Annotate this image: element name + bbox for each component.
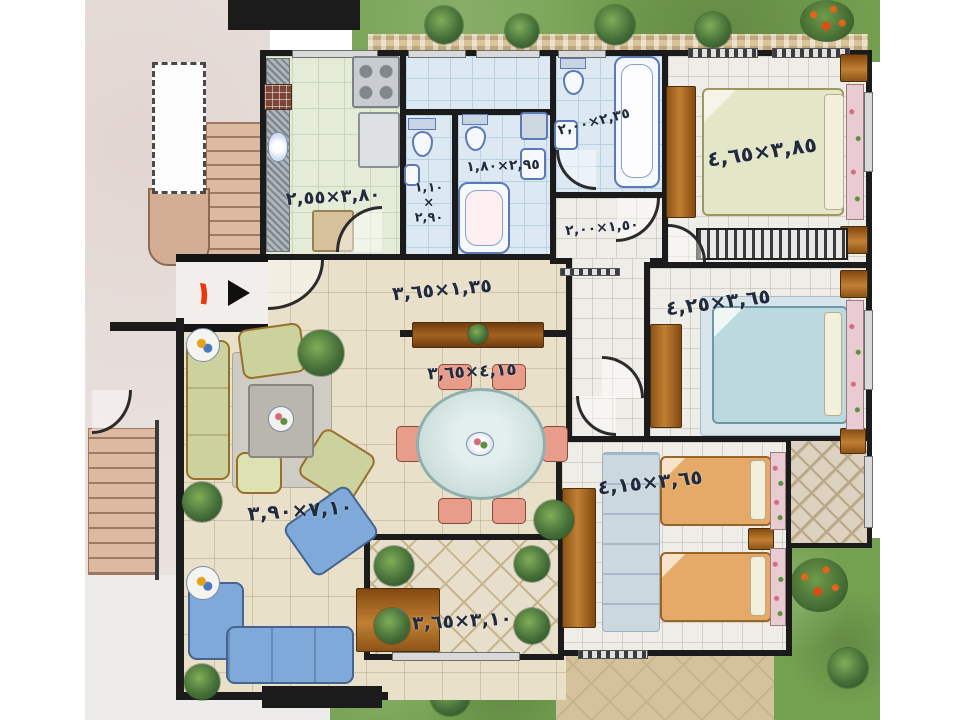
sofa-blue [226,626,354,684]
armchair-green [237,322,307,380]
window [578,650,648,659]
upper-staircase [206,122,266,265]
wc-dim-length: ٢,٩٠ [415,211,444,226]
bathtub-inner [465,190,503,246]
nightstand [840,54,868,82]
headboard [770,452,786,530]
toilet-tank [560,58,586,69]
terrace-plant [374,608,410,644]
terrace-plant [514,608,550,644]
wall-stub-top [228,0,360,30]
dining-chair [438,498,472,524]
window [772,48,850,58]
floor-plan-canvas: ١ [0,0,960,720]
centerpiece [466,432,494,456]
chair-green [236,452,282,494]
stove [352,56,400,108]
plant [468,324,488,344]
pillow [750,556,766,616]
shrub [595,5,635,45]
shrub [505,14,539,48]
pillow [750,460,766,520]
entrance-number: ١ [191,273,216,313]
wardrobe [666,86,696,218]
nightstand [840,428,866,454]
headboard [846,84,864,220]
elevator-shaft [152,62,206,194]
flower-bush [800,0,854,42]
palm-plant [184,664,220,700]
flower-bowl [268,406,294,432]
wc-dim-width: ١,١٠ [415,182,444,197]
palm-plant [298,330,344,376]
pillow [824,94,844,210]
lower-staircase [88,428,158,575]
balcony-railing [864,456,873,528]
shrub [425,6,463,44]
shrub [828,648,868,688]
entrance-arrow-icon [228,280,250,306]
window [688,48,758,58]
flower-bush [790,558,848,612]
wc-dim-times: × [415,197,444,212]
kitchen-sink [268,132,288,162]
wall-stub-entrance [110,322,180,331]
side-table [186,328,220,362]
headboard [770,548,786,626]
shrub [695,12,731,48]
window [864,310,873,390]
terrace-plant [514,546,550,582]
dining-chair [492,498,526,524]
window [558,50,606,58]
kitchen-hob [264,84,292,110]
dishwasher [358,112,400,168]
terrace-plant [374,546,414,586]
bath-lobby [400,50,556,115]
stair-rail [155,420,159,580]
wall-block-bottom [262,686,382,708]
wardrobe [650,324,682,428]
nightstand [748,528,774,550]
palm-plant [534,500,574,540]
bathroom-dim-label: ٢,٩٥×١,٨٠ [466,157,540,176]
nightstand [840,270,868,298]
window [392,652,520,661]
toilet-tank [462,114,488,125]
headboard [846,300,864,430]
entrance-landing: ١ [176,254,268,332]
toilet-tank [408,118,436,130]
pillow [824,312,842,416]
palm-plant [182,482,222,522]
window [864,92,873,172]
wc-dim-label: ١,١٠ × ٢,٩٠ [415,182,444,227]
closet [696,228,848,260]
window [560,268,620,276]
stone-path-bottom [556,650,774,720]
window [476,50,540,58]
washing-machine [520,112,548,140]
side-table [186,566,220,600]
window [408,50,466,58]
